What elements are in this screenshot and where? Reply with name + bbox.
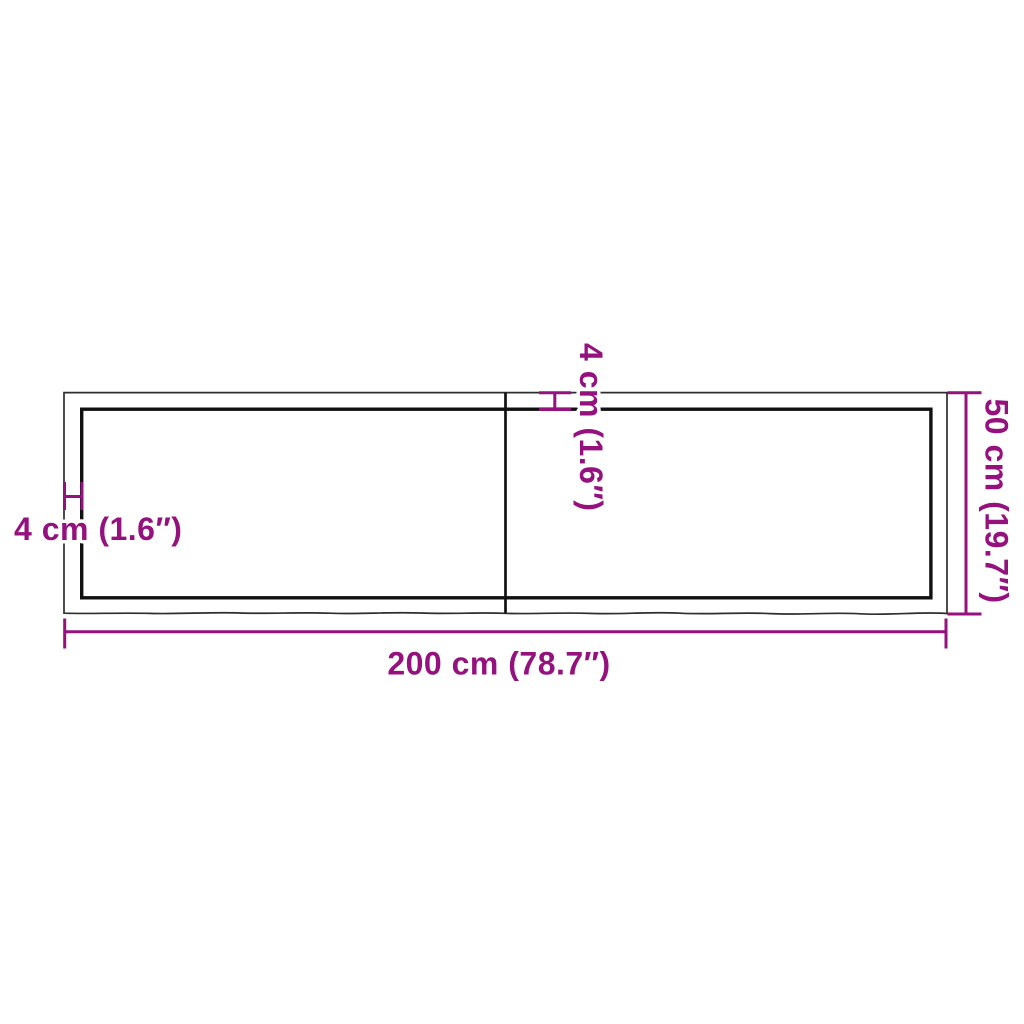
- svg-text:200 cm (78.7″): 200 cm (78.7″): [387, 646, 610, 682]
- svg-text:4 cm (1.6″): 4 cm (1.6″): [14, 511, 182, 547]
- svg-text:4 cm (1.6″): 4 cm (1.6″): [573, 343, 609, 511]
- svg-text:50 cm (19.7″): 50 cm (19.7″): [979, 399, 1015, 604]
